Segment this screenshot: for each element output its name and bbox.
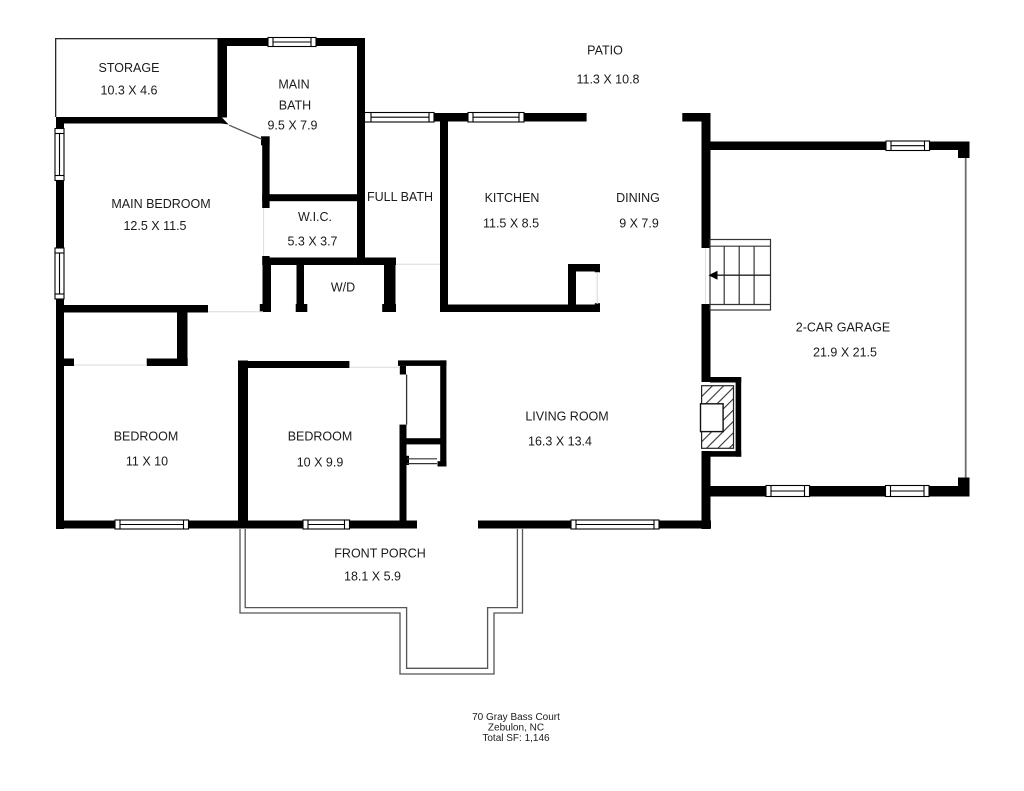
svg-text:MAIN BEDROOM: MAIN BEDROOM: [111, 197, 210, 211]
svg-text:STORAGE: STORAGE: [99, 61, 160, 75]
svg-text:21.9 X 21.5: 21.9 X 21.5: [813, 346, 877, 360]
svg-text:BEDROOM: BEDROOM: [288, 430, 353, 444]
svg-text:W.I.C.: W.I.C.: [298, 210, 332, 224]
svg-text:11.5 X 8.5: 11.5 X 8.5: [483, 217, 539, 231]
svg-text:18.1 X 5.9: 18.1 X 5.9: [344, 570, 401, 584]
svg-text:PATIO: PATIO: [587, 44, 623, 58]
svg-text:BEDROOM: BEDROOM: [114, 430, 179, 444]
svg-text:Total SF: 1,146: Total SF: 1,146: [482, 733, 550, 744]
svg-text:12.5 X 11.5: 12.5 X 11.5: [123, 219, 186, 233]
svg-text:10.3 X 4.6: 10.3 X 4.6: [101, 84, 158, 98]
svg-text:10 X 9.9: 10 X 9.9: [297, 456, 344, 470]
svg-text:MAIN: MAIN: [278, 78, 309, 92]
svg-text:5.3 X 3.7: 5.3 X 3.7: [287, 235, 337, 249]
svg-text:9.5 X 7.9: 9.5 X 7.9: [267, 119, 317, 133]
svg-text:11.3 X 10.8: 11.3 X 10.8: [576, 73, 639, 87]
svg-text:LIVING ROOM: LIVING ROOM: [525, 410, 608, 424]
svg-text:Zebulon, NC: Zebulon, NC: [488, 723, 544, 734]
svg-text:FRONT PORCH: FRONT PORCH: [334, 547, 425, 561]
svg-text:2-CAR GARAGE: 2-CAR GARAGE: [796, 321, 890, 335]
svg-text:70 Gray Bass Court: 70 Gray Bass Court: [472, 712, 560, 723]
svg-text:DINING: DINING: [616, 191, 660, 205]
svg-text:9 X 7.9: 9 X 7.9: [619, 217, 659, 231]
svg-text:11 X 10: 11 X 10: [126, 455, 168, 469]
svg-text:W/D: W/D: [331, 281, 355, 295]
svg-text:FULL BATH: FULL BATH: [367, 190, 433, 204]
svg-text:16.3 X 13.4: 16.3 X 13.4: [528, 435, 592, 449]
svg-text:KITCHEN: KITCHEN: [485, 191, 540, 205]
svg-text:BATH: BATH: [279, 99, 311, 113]
